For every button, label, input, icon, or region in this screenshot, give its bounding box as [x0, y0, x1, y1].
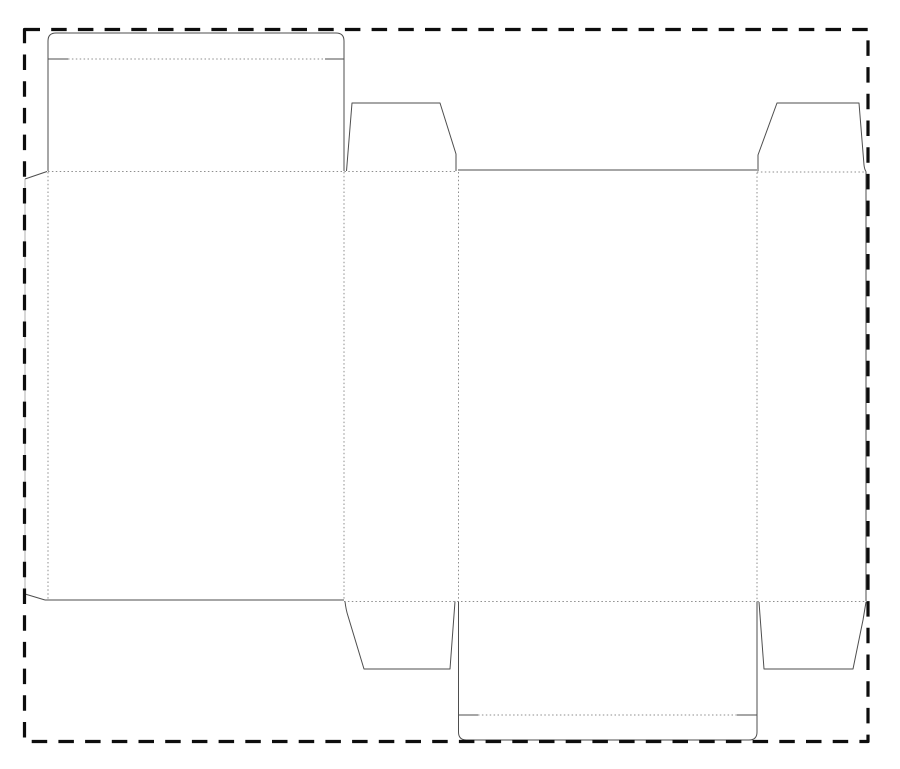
dust-flap-bottom-left — [345, 601, 455, 669]
panel-regions-layer — [25, 33, 866, 740]
side-panel-left — [344, 171, 458, 601]
bottom-tuck-flap — [458, 715, 757, 740]
dust-flap-bottom-right — [759, 602, 866, 669]
dust-flap-top-left — [346, 103, 456, 171]
glue-flap — [25, 172, 48, 598]
dieline-canvas — [0, 0, 900, 769]
top-panel — [48, 59, 344, 171]
back-panel — [48, 171, 344, 600]
dieline-svg — [0, 0, 900, 769]
side-panel-right — [757, 172, 866, 601]
top-tuck-flap — [48, 33, 344, 59]
front-panel — [458, 170, 757, 601]
bottom-panel — [458, 601, 757, 715]
